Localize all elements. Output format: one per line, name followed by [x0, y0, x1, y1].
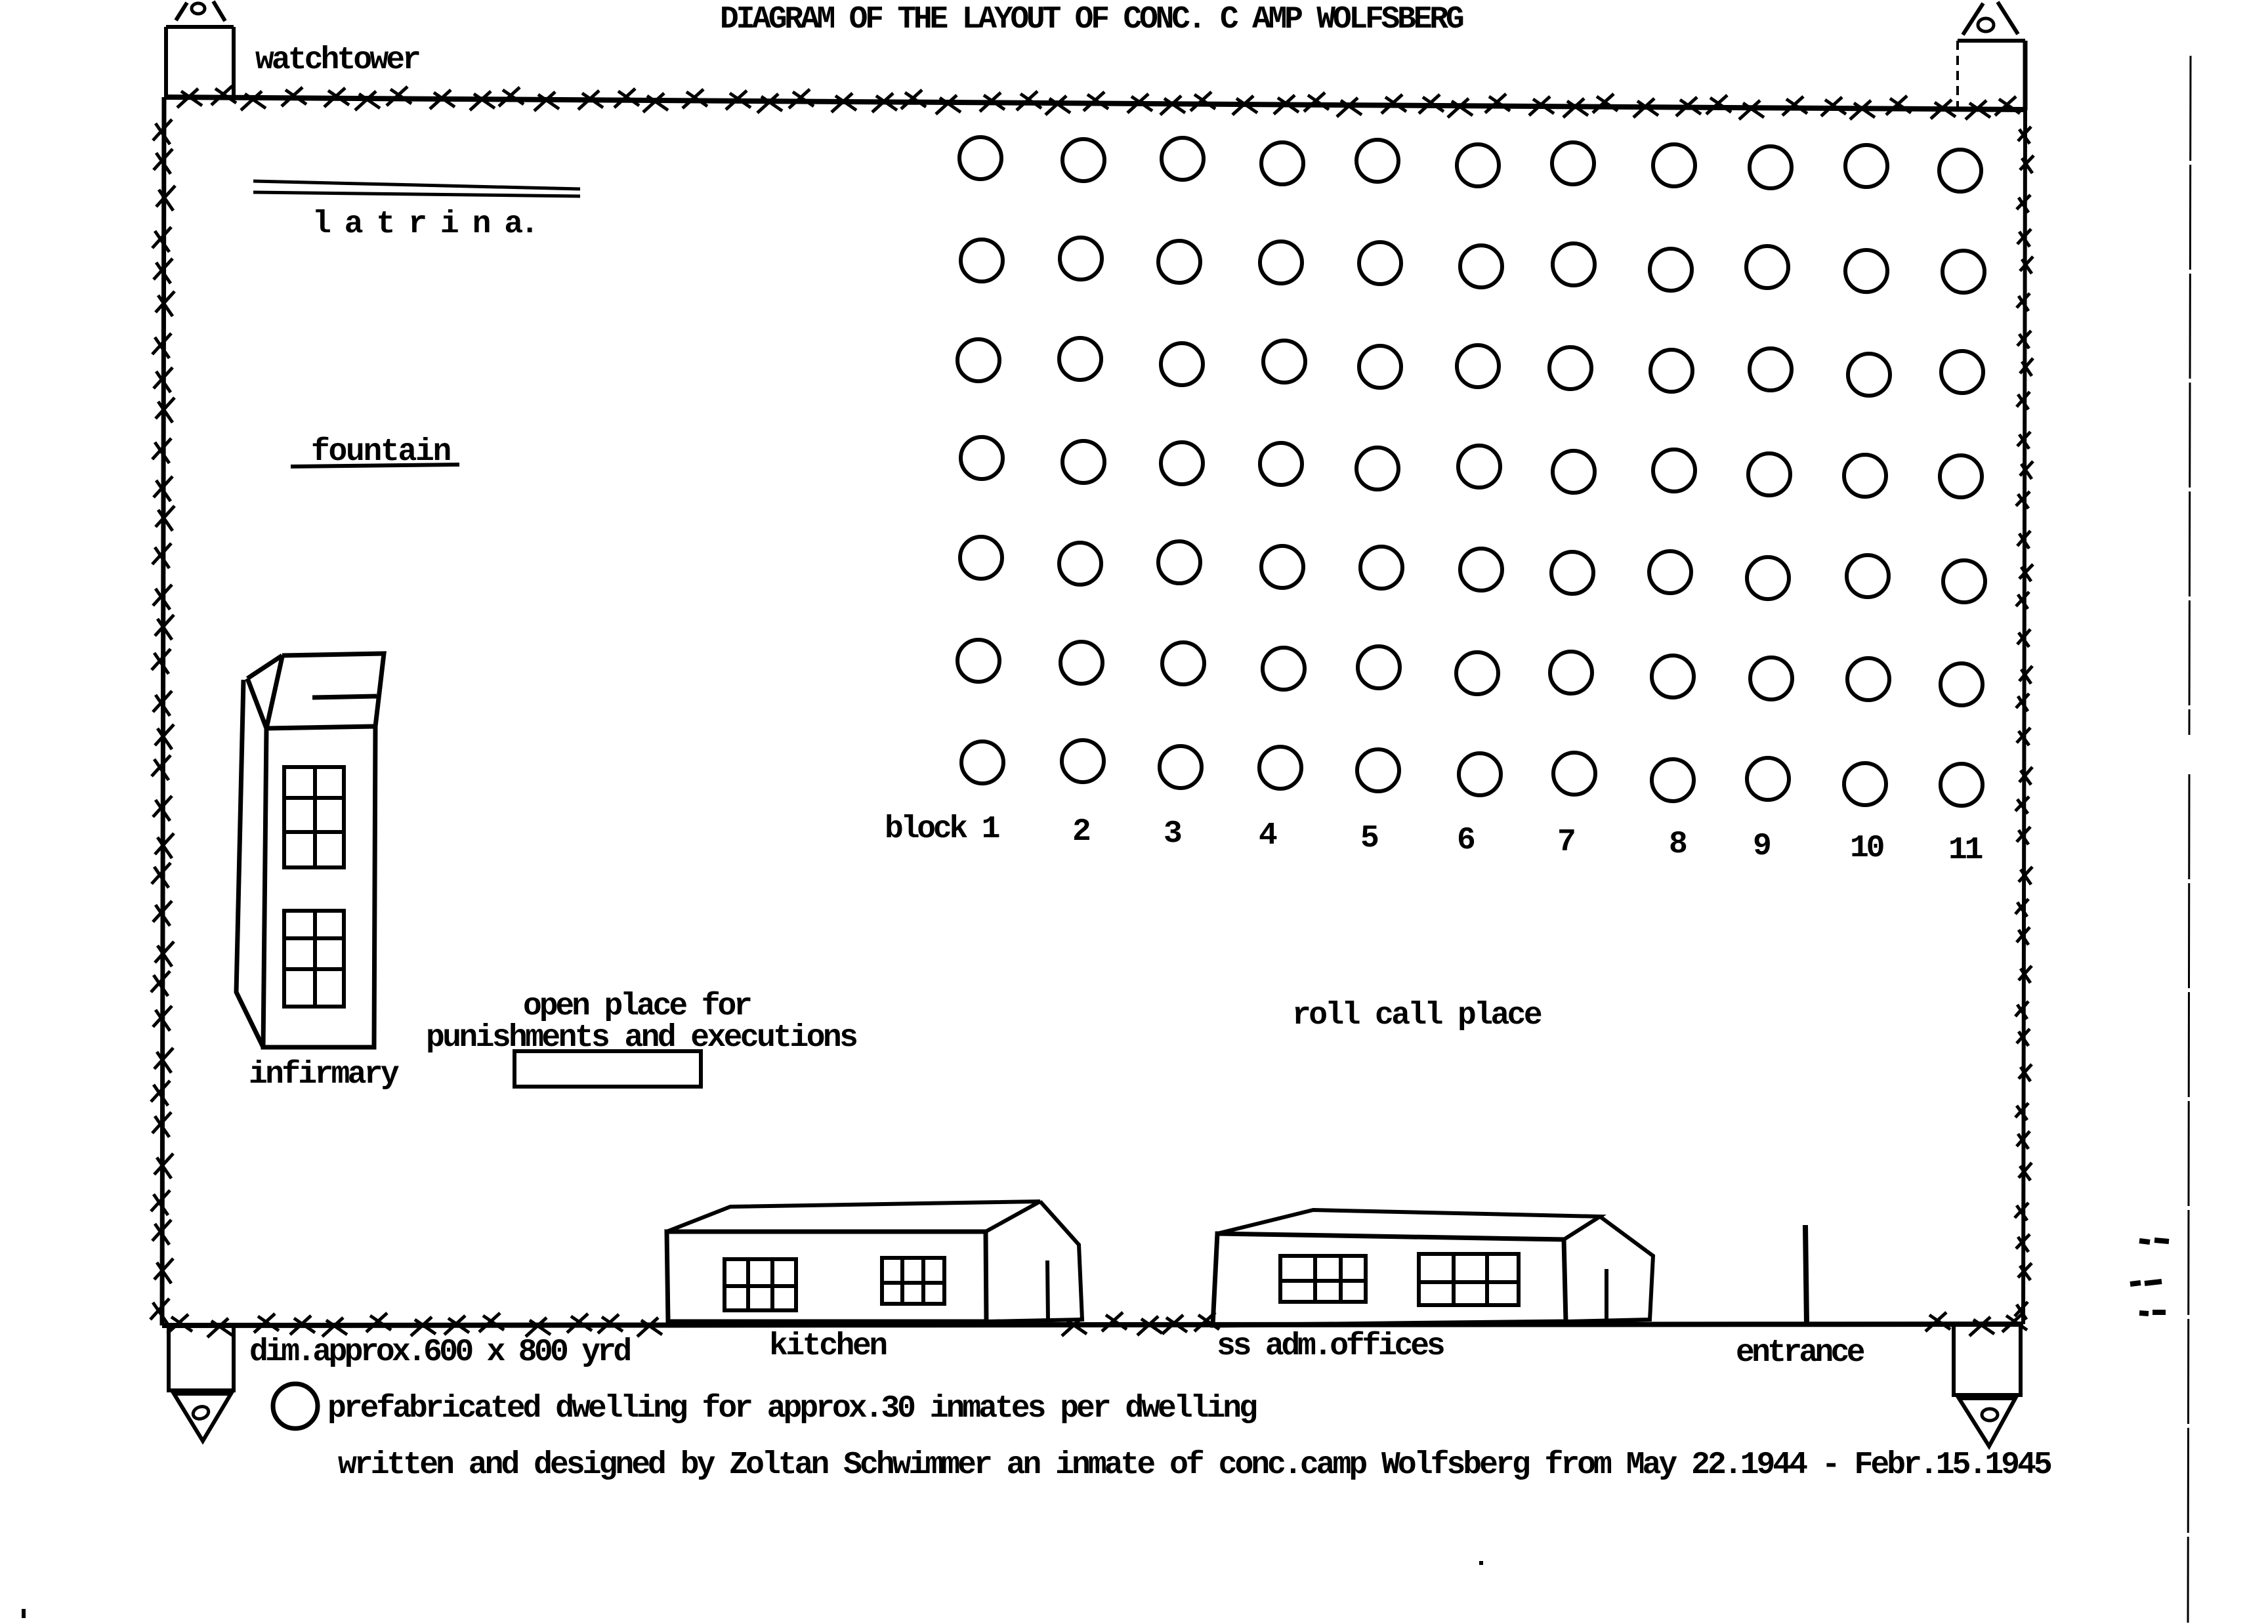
- svg-text:4: 4: [1259, 818, 1278, 854]
- svg-text:ss adm.offices: ss adm.offices: [1217, 1329, 1444, 1364]
- svg-text:9: 9: [1753, 829, 1772, 864]
- svg-text:entrance: entrance: [1736, 1335, 1864, 1371]
- svg-text:kitchen: kitchen: [769, 1329, 886, 1364]
- svg-text:block 1: block 1: [885, 812, 999, 847]
- svg-text:written and designed by Zoltan: written and designed by Zoltan Schwimmer…: [338, 1447, 2051, 1483]
- svg-text:11: 11: [1948, 833, 1983, 868]
- svg-text:dim.approx.600 x 800 yrd: dim.approx.600 x 800 yrd: [249, 1335, 630, 1370]
- svg-text:2: 2: [1072, 814, 1091, 850]
- svg-text:5: 5: [1360, 821, 1379, 856]
- svg-text:watchtower: watchtower: [255, 43, 419, 78]
- svg-text:10: 10: [1850, 831, 1884, 866]
- svg-text:roll call place: roll call place: [1292, 998, 1542, 1033]
- svg-text:infirmary: infirmary: [249, 1057, 399, 1093]
- svg-text:3: 3: [1164, 816, 1183, 852]
- svg-text:6: 6: [1457, 823, 1476, 858]
- svg-text:7: 7: [1557, 825, 1576, 860]
- svg-text:prefabricated dwelling for app: prefabricated dwelling for approx.30 inm…: [327, 1391, 1257, 1426]
- svg-text:l a t r i n a.: l a t r i n a.: [312, 207, 536, 242]
- svg-text:8: 8: [1669, 827, 1688, 862]
- svg-text:DIAGRAM OF THE LAYOUT OF CONC.: DIAGRAM OF THE LAYOUT OF CONC. C AMP WOL…: [720, 2, 1463, 37]
- svg-text:open place for: open place for: [523, 989, 751, 1024]
